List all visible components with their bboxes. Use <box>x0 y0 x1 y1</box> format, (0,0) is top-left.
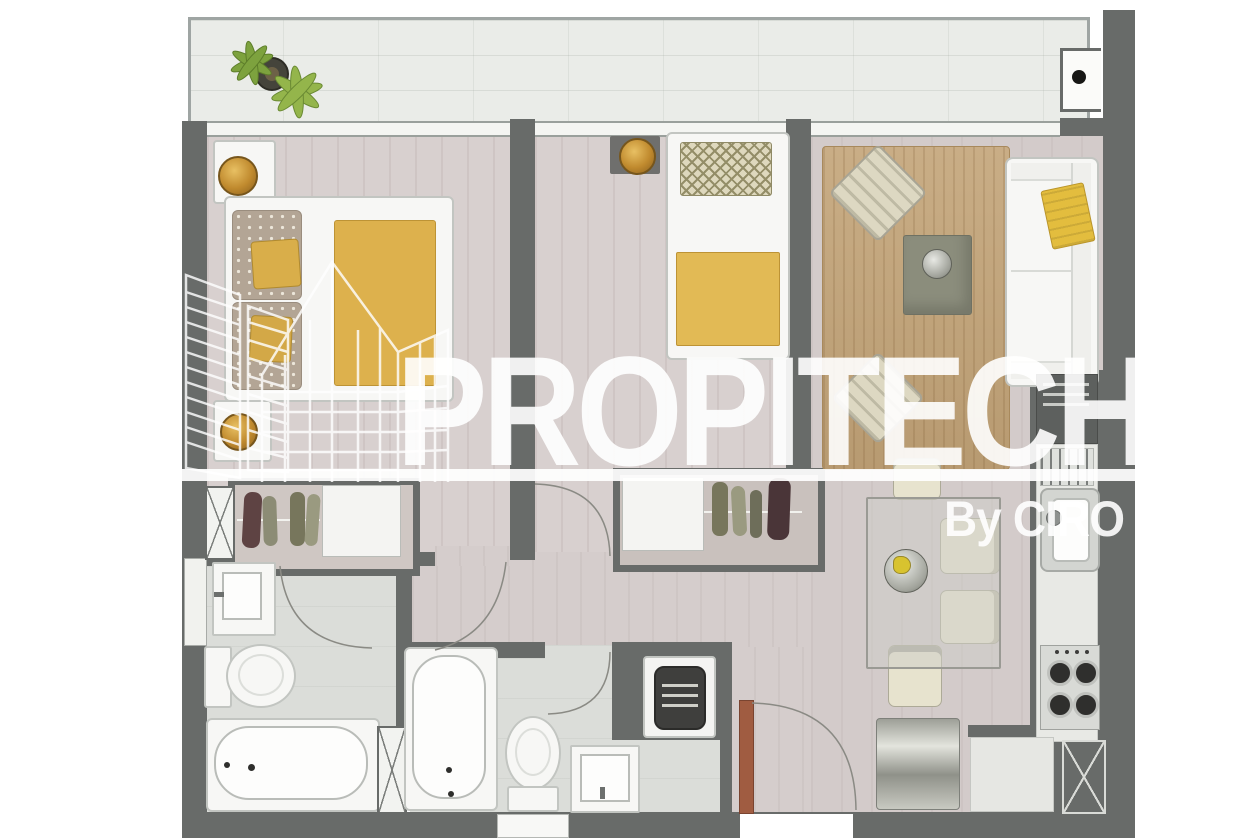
floor-plan: PROPITECH By CIRO <box>0 0 1260 840</box>
watermark-brand: PROPITECH <box>396 334 1135 490</box>
watermark-clip: PROPITECH By CIRO <box>0 0 1135 840</box>
watermark-byline: By CIRO <box>944 494 1124 544</box>
